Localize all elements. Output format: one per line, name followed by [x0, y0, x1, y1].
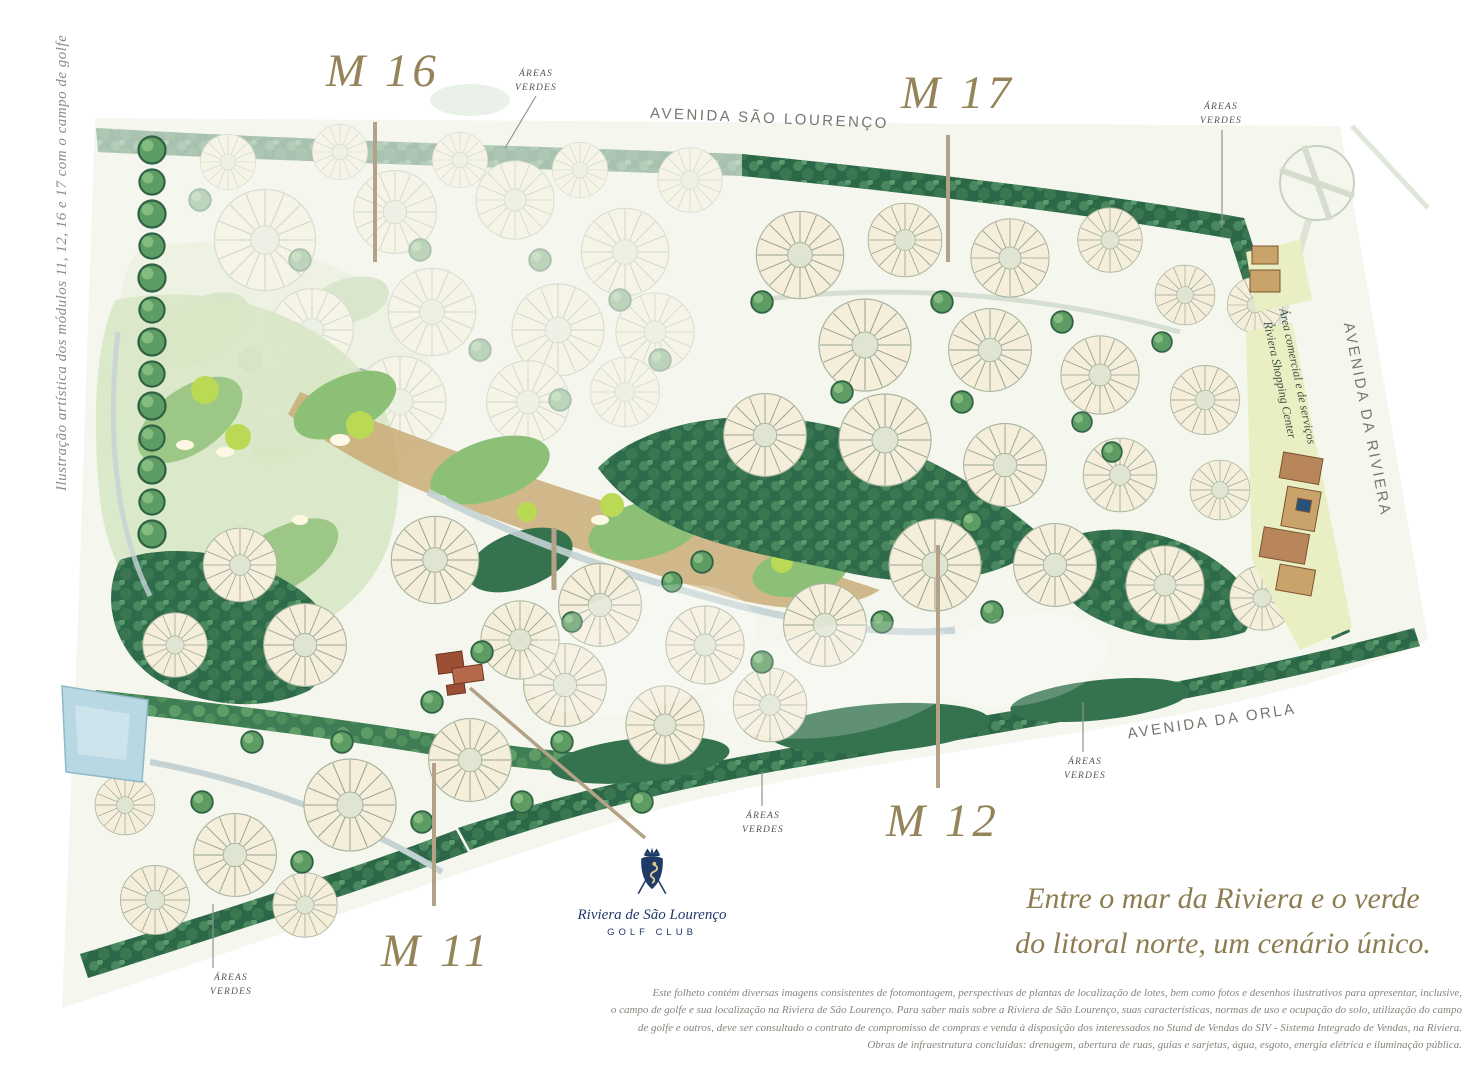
module-label-m12: M 12 [886, 794, 1000, 848]
legal-disclaimer: Este folheto contém diversas imagens con… [582, 985, 1462, 1055]
brochure-page: Ilustração artística dos módulos 11, 12,… [0, 0, 1473, 1080]
green-area-label-mid-right: ÁREAS VERDES [1045, 756, 1125, 784]
crowned-seahorse-crest-icon [629, 846, 675, 900]
module-label-m17: M 17 [901, 66, 1015, 120]
illustration-caption: Ilustração artística dos módulos 11, 12,… [54, 91, 74, 491]
green-area-label-top-left: ÁREAS VERDES [496, 68, 576, 96]
module-label-m11: M 11 [381, 924, 491, 978]
lake [62, 686, 148, 782]
marketing-tagline: Entre o mar da Riviera e o verde do lito… [1008, 876, 1438, 966]
green-area-label-bottom-left: ÁREAS VERDES [191, 972, 271, 1000]
golf-club-type: GOLF CLUB [542, 927, 762, 938]
golf-club-logo: Riviera de São Lourenço GOLF CLUB [542, 846, 762, 938]
module-label-m16: M 16 [326, 44, 440, 98]
golf-club-name: Riviera de São Lourenço [542, 907, 762, 924]
green-area-label-mid: ÁREAS VERDES [723, 810, 803, 838]
green-area-label-top-right: ÁREAS VERDES [1181, 101, 1261, 129]
